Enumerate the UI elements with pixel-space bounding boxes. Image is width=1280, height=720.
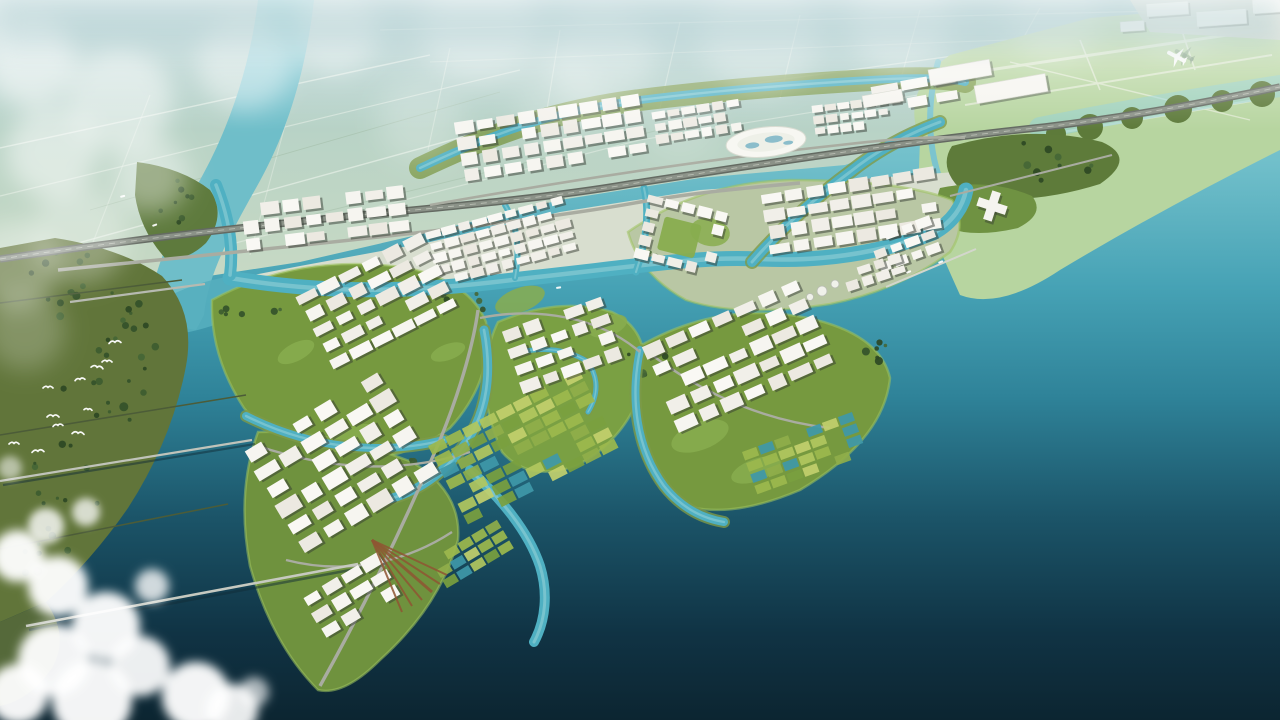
building-block	[386, 185, 404, 200]
tree-clump	[36, 490, 42, 496]
building-block	[460, 151, 478, 166]
tree-clump	[120, 317, 126, 323]
tree-clump	[140, 389, 146, 395]
tree-clump	[108, 410, 111, 413]
building-block	[526, 158, 541, 172]
building-block	[388, 202, 407, 216]
building-block	[567, 151, 583, 165]
building-block	[282, 198, 300, 212]
tree-clump	[627, 353, 631, 357]
tree-clump	[143, 323, 149, 329]
cloud-puff	[72, 498, 100, 526]
tree-clump	[278, 308, 282, 312]
tree-clump	[122, 322, 129, 329]
tree-clump	[106, 338, 111, 343]
building-block	[368, 222, 388, 236]
tree-clump	[33, 462, 36, 465]
tree-clump	[1023, 161, 1031, 169]
tree-clump	[61, 386, 67, 392]
building-block	[464, 168, 480, 182]
tree-clump	[42, 501, 46, 505]
tree-clump	[143, 367, 147, 371]
tree-clump	[96, 378, 103, 385]
cloud-puff	[239, 677, 269, 707]
tree-clump	[224, 312, 228, 316]
building-block	[285, 232, 306, 246]
storage-tank	[807, 294, 814, 301]
tree-clump	[127, 379, 131, 383]
tree-clump	[271, 308, 278, 315]
building-block	[264, 217, 280, 232]
building-block	[284, 216, 302, 229]
tree-clump	[80, 283, 86, 289]
tree-clump	[106, 401, 110, 405]
tree-clump	[131, 325, 138, 332]
tree-clump	[96, 347, 103, 354]
tree-clump	[135, 300, 143, 308]
tree-clump	[63, 498, 67, 502]
tree-clump	[876, 339, 882, 345]
tree-clump	[57, 299, 64, 306]
tree-clump	[480, 307, 486, 313]
building-block	[302, 195, 321, 210]
tree-clump	[94, 413, 99, 418]
tree-clump	[223, 305, 230, 312]
storage-tank	[817, 286, 827, 296]
building-block	[260, 200, 280, 215]
building-block	[523, 142, 539, 156]
tree-clump	[476, 298, 482, 304]
tree-clump	[189, 194, 195, 200]
render-canvas	[0, 0, 1280, 720]
tree-clump	[239, 311, 245, 317]
building-block	[482, 148, 498, 163]
tree-clump	[128, 418, 132, 422]
tree-clump	[179, 215, 185, 221]
tree-clump	[152, 343, 160, 351]
tree-clump	[1039, 178, 1044, 183]
building-block	[790, 221, 807, 236]
tree-clump	[1089, 164, 1093, 168]
building-block	[769, 224, 786, 239]
tree-clump	[875, 356, 879, 360]
tree-clump	[475, 292, 479, 296]
tree-clump	[56, 497, 59, 500]
tree-clump	[110, 291, 113, 294]
storage-tank	[831, 280, 839, 288]
aerial-city-render	[0, 0, 1280, 720]
cloud-puff	[28, 508, 64, 544]
tree-clump	[862, 348, 870, 356]
tree-clump	[119, 402, 128, 411]
building-block	[246, 238, 261, 251]
tree-clump	[1055, 154, 1062, 161]
tree-clump	[1045, 146, 1053, 154]
building-block	[811, 217, 830, 232]
tree-clump	[125, 306, 132, 313]
tree-clump	[874, 346, 879, 351]
tree-clump	[59, 441, 66, 448]
building-block	[345, 191, 361, 205]
top-cloud-tint	[0, 0, 1280, 46]
tree-clump	[884, 344, 888, 348]
building-block	[243, 220, 260, 235]
cloud-puff	[135, 569, 169, 603]
tree-clump	[1021, 141, 1026, 146]
tree-clump	[104, 353, 109, 358]
tree-clump	[91, 380, 96, 385]
building-block	[306, 214, 322, 226]
cloud-puff	[112, 137, 188, 213]
tree-clump	[64, 547, 71, 554]
tree-clump	[1084, 167, 1091, 174]
tree-clump	[138, 354, 145, 361]
building-block	[347, 207, 363, 222]
tree-clump	[69, 444, 73, 448]
